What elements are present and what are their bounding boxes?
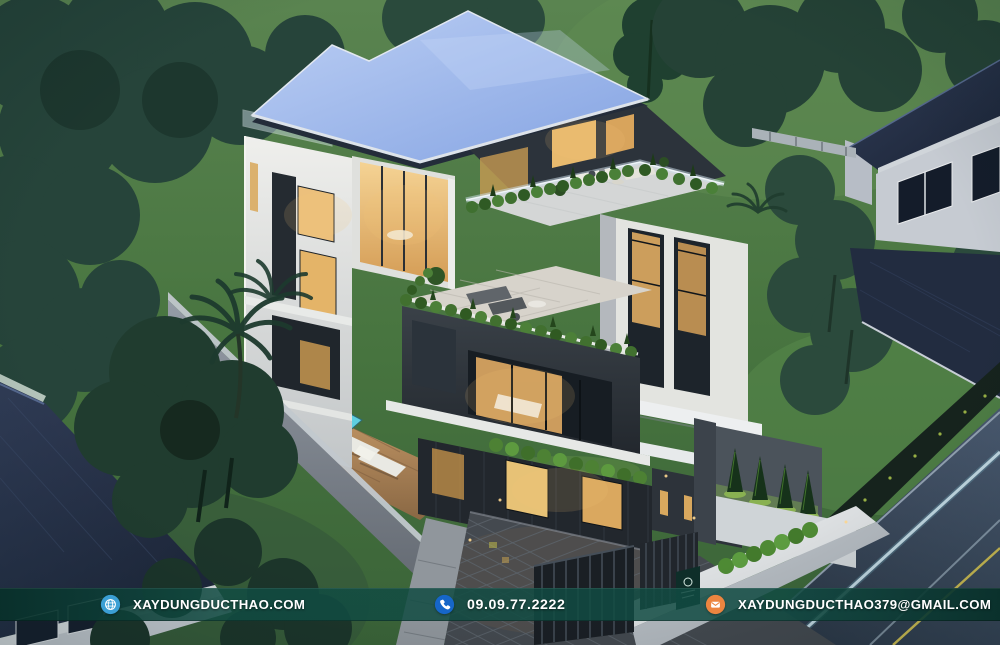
globe-icon: [100, 594, 121, 615]
villa-render-scene: [0, 0, 1000, 645]
phone-label: 09.09.77.2222: [467, 597, 566, 613]
contact-phone[interactable]: 09.09.77.2222: [434, 588, 566, 621]
contact-website[interactable]: XAYDUNGDUCTHAO.COM: [100, 588, 305, 621]
villa-render-image: XAYDUNGDUCTHAO.COM 09.09.77.2222 XAYDUNG…: [0, 0, 1000, 645]
contact-email[interactable]: XAYDUNGDUCTHAO379@GMAIL.COM: [705, 588, 991, 621]
vignette-overlay: [0, 0, 1000, 645]
website-label: XAYDUNGDUCTHAO.COM: [133, 597, 305, 612]
email-label: XAYDUNGDUCTHAO379@GMAIL.COM: [738, 597, 991, 612]
contact-bar: XAYDUNGDUCTHAO.COM 09.09.77.2222 XAYDUNG…: [0, 588, 1000, 621]
email-icon: [705, 594, 726, 615]
phone-icon: [434, 594, 455, 615]
